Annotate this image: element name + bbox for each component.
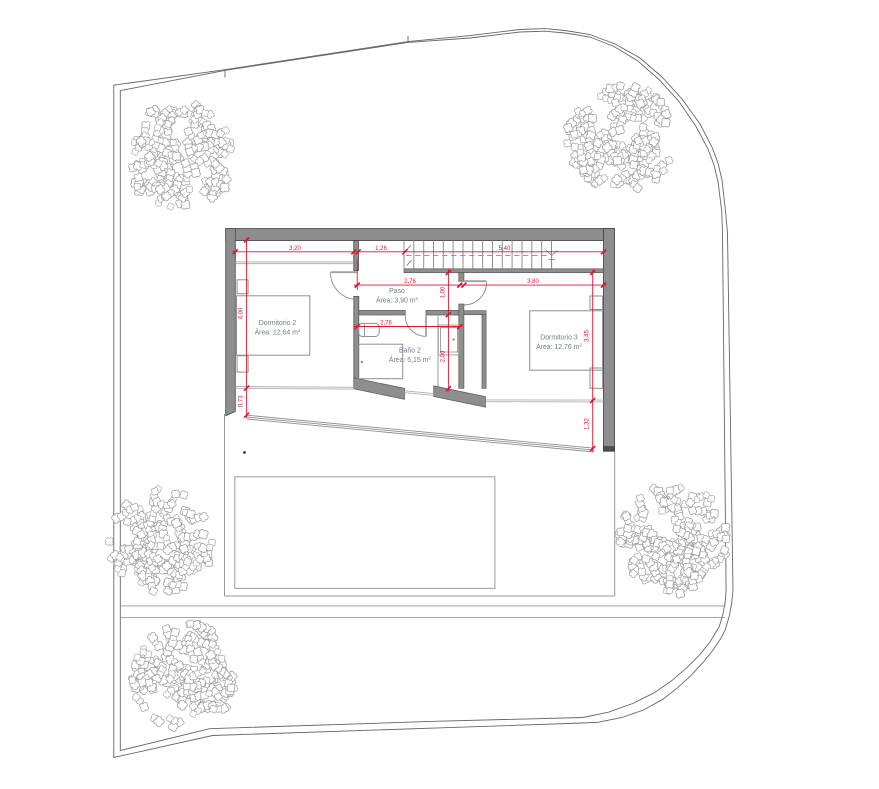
svg-text:Paso: Paso bbox=[389, 288, 405, 295]
svg-text:Área: 3,90 m2: Área: 3,90 m2 bbox=[376, 296, 418, 305]
svg-text:3,80: 3,80 bbox=[527, 279, 539, 285]
svg-text:1,00: 1,00 bbox=[440, 286, 446, 298]
svg-text:2,00: 2,00 bbox=[440, 350, 446, 362]
svg-text:Baño 2: Baño 2 bbox=[399, 348, 421, 355]
svg-text:1,26: 1,26 bbox=[375, 246, 387, 252]
svg-text:Área: 12,64 m2: Área: 12,64 m2 bbox=[255, 327, 301, 336]
svg-text:Dormitorio 3: Dormitorio 3 bbox=[540, 335, 578, 342]
svg-text:4,00: 4,00 bbox=[239, 307, 245, 319]
svg-text:Dormitorio 2: Dormitorio 2 bbox=[259, 320, 297, 327]
svg-text:3,20: 3,20 bbox=[289, 246, 301, 252]
svg-text:3,45: 3,45 bbox=[585, 330, 591, 342]
svg-text:Área: 5,15 m2: Área: 5,15 m2 bbox=[389, 355, 431, 364]
svg-text:5,40: 5,40 bbox=[499, 246, 511, 252]
svg-text:2,76: 2,76 bbox=[404, 279, 416, 285]
svg-text:1,32: 1,32 bbox=[585, 418, 591, 430]
svg-text:0,73: 0,73 bbox=[239, 395, 245, 407]
svg-text:2,76: 2,76 bbox=[380, 320, 392, 326]
svg-text:Área: 12,76 m2: Área: 12,76 m2 bbox=[536, 342, 582, 351]
